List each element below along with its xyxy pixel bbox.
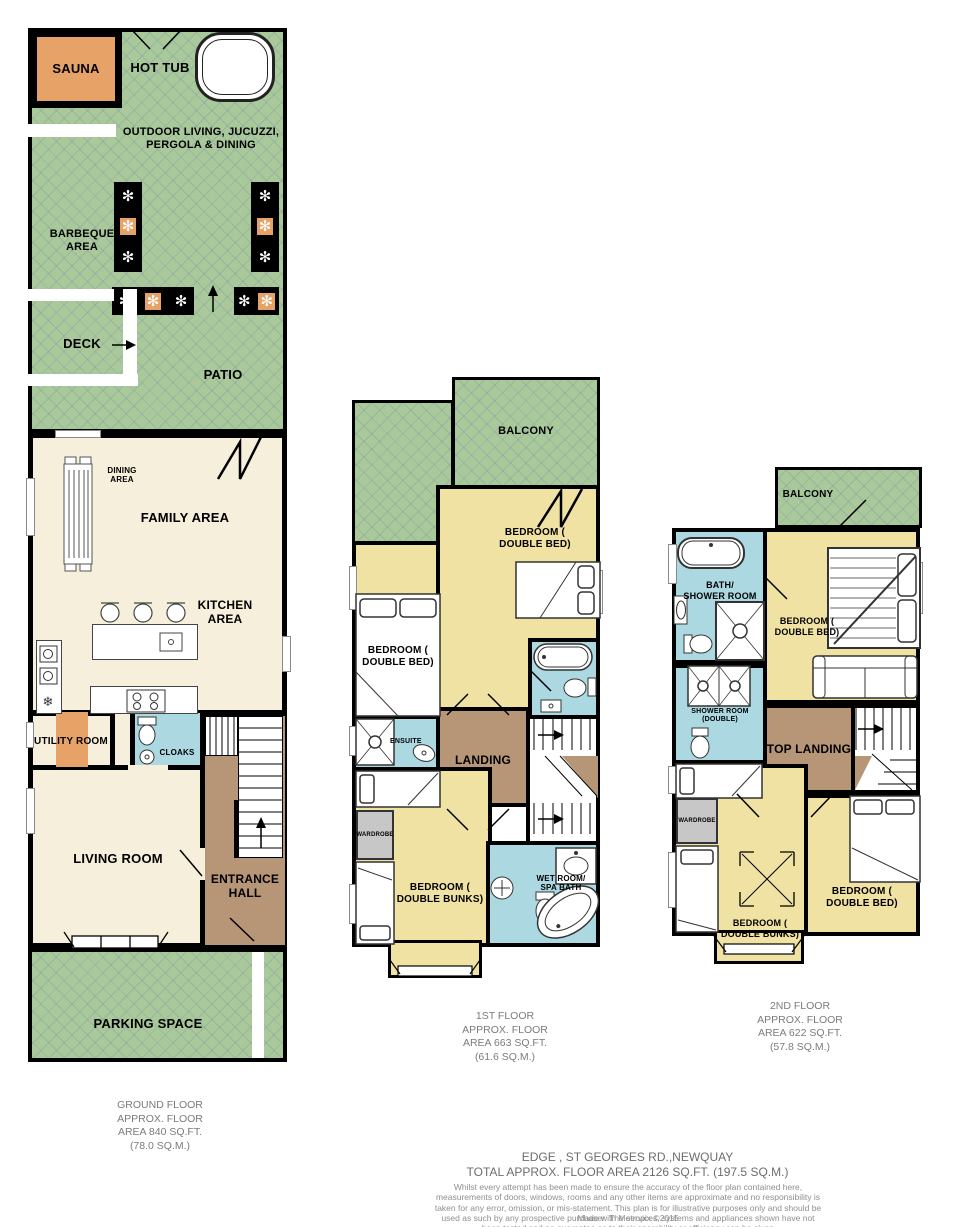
plant-icon: ✻ bbox=[259, 189, 272, 204]
planter-icon: ✻ ✻ bbox=[234, 287, 279, 315]
label-dining-area: DINING AREA bbox=[94, 466, 150, 485]
staircase-2f bbox=[851, 704, 920, 794]
label-kitchen-area: KITCHEN AREA bbox=[192, 598, 258, 626]
kitchen-island bbox=[92, 624, 198, 660]
parking-path bbox=[252, 952, 264, 1058]
room-bedroom-bunks-2f bbox=[672, 764, 808, 936]
window bbox=[26, 788, 35, 834]
room-wet-room bbox=[486, 841, 600, 947]
hot-tub-inner-rim bbox=[202, 39, 268, 95]
first-floor-area-label: 1ST FLOOR APPROX. FLOOR AREA 663 SQ.FT. … bbox=[430, 1010, 580, 1065]
label-family-area: FAMILY AREA bbox=[128, 510, 242, 525]
hot-tub-icon bbox=[195, 32, 275, 102]
staircase-1f bbox=[526, 715, 600, 857]
window bbox=[282, 636, 291, 672]
label-living-room: LIVING ROOM bbox=[58, 851, 178, 866]
label-bedroom-double-right-1f: BEDROOM ( DOUBLE BED) bbox=[470, 527, 600, 551]
staircase bbox=[205, 716, 238, 756]
label-shower-room-double: SHOWER ROOM (DOUBLE) bbox=[680, 708, 760, 725]
address-line: EDGE , ST GEORGES RD.,NEWQUAY bbox=[425, 1150, 830, 1164]
freezer-icon: ❄ bbox=[38, 694, 58, 709]
label-cloaks: CLOAKS bbox=[152, 748, 202, 757]
plant-icon: ✻ bbox=[258, 293, 275, 310]
window bbox=[55, 430, 101, 438]
plant-icon: ✻ bbox=[257, 218, 274, 235]
window bbox=[668, 766, 677, 794]
wall bbox=[234, 800, 239, 858]
plant-icon: ✻ bbox=[145, 293, 162, 310]
label-utility-room: UTILITY ROOM bbox=[25, 736, 117, 748]
label-deck: DECK bbox=[46, 336, 118, 351]
window bbox=[668, 852, 677, 908]
label-bedroom-bunks-1f: BEDROOM ( DOUBLE BUNKS) bbox=[378, 882, 502, 906]
label-landing-1f: LANDING bbox=[438, 753, 528, 767]
label-outdoor-living: OUTDOOR LIVING, JUCUZZI, PERGOLA & DININ… bbox=[118, 126, 284, 152]
window bbox=[595, 570, 603, 614]
label-barbeque: BARBEQUE AREA bbox=[38, 228, 126, 254]
label-sauna: SAUNA bbox=[34, 61, 118, 76]
label-bedroom-bunks-2f: BEDROOM ( DOUBLE BUNKS) bbox=[700, 918, 820, 939]
window bbox=[26, 478, 35, 536]
window bbox=[349, 566, 357, 610]
staircase bbox=[238, 716, 283, 858]
wall-opening bbox=[28, 374, 138, 386]
plant-icon: ✻ bbox=[259, 250, 272, 265]
label-balcony-1f: BALCONY bbox=[454, 425, 598, 438]
planter-icon: ✻ ✻ ✻ bbox=[114, 182, 142, 272]
window bbox=[668, 544, 677, 584]
label-patio: PATIO bbox=[178, 367, 268, 382]
bay-bunks-1f bbox=[388, 940, 482, 978]
label-bath-shower-room: BATH/ SHOWER ROOM bbox=[676, 580, 764, 601]
label-wardrobe-2f: WARDROBE bbox=[674, 818, 720, 825]
label-top-landing: TOP LANDING bbox=[763, 742, 855, 756]
kitchen-counter bbox=[90, 686, 198, 714]
label-ensuite: ENSUITE bbox=[390, 738, 442, 746]
plant-icon: ✻ bbox=[175, 294, 188, 309]
window bbox=[914, 562, 923, 614]
plant-icon: ✻ bbox=[122, 189, 135, 204]
floor-plan-canvas: ✻ ✻ ✻ ✻ ✻ ✻ ✻ ✻ ✻ ✻ ✻ ❄ bbox=[0, 0, 960, 1227]
planter-icon: ✻ ✻ ✻ bbox=[251, 182, 279, 272]
room-bedroom-double-left-1f bbox=[352, 541, 444, 719]
total-area-line: TOTAL APPROX. FLOOR AREA 2126 SQ.FT. (19… bbox=[415, 1165, 840, 1179]
plant-icon: ✻ bbox=[238, 294, 251, 309]
wall-opening bbox=[28, 289, 114, 301]
door-opening bbox=[128, 765, 168, 770]
wall-opening bbox=[28, 124, 116, 137]
wall bbox=[28, 765, 203, 770]
label-entrance-hall: ENTRANCE HALL bbox=[205, 872, 285, 900]
room-parking bbox=[28, 948, 287, 1062]
window bbox=[349, 884, 357, 924]
second-floor-area-label: 2ND FLOOR APPROX. FLOOR AREA 622 SQ.FT. … bbox=[725, 1000, 875, 1055]
room-bedroom-double-bottom-2f bbox=[804, 794, 920, 936]
label-bedroom-double-top-2f: BEDROOM ( DOUBLE BED) bbox=[763, 616, 851, 637]
label-parking-space: PARKING SPACE bbox=[68, 1016, 228, 1031]
window bbox=[349, 726, 357, 756]
label-bedroom-double-left-1f: BEDROOM ( DOUBLE BED) bbox=[344, 645, 452, 669]
label-wardrobe-1f: WARDROBE bbox=[354, 832, 396, 839]
deck-patio-divider bbox=[123, 289, 137, 386]
credit-line: Made with Metropix ©2015 bbox=[432, 1213, 824, 1223]
label-wet-room: WET ROOM/ SPA BATH bbox=[522, 874, 600, 893]
room-bathroom-1f bbox=[528, 638, 600, 719]
label-hot-tub: HOT TUB bbox=[124, 60, 196, 75]
label-bedroom-double-bottom-2f: BEDROOM ( DOUBLE BED) bbox=[806, 886, 918, 910]
label-balcony-2f: BALCONY bbox=[768, 489, 848, 501]
ground-floor-area-label: GROUND FLOOR APPROX. FLOOR AREA 840 SQ.F… bbox=[85, 1099, 235, 1154]
